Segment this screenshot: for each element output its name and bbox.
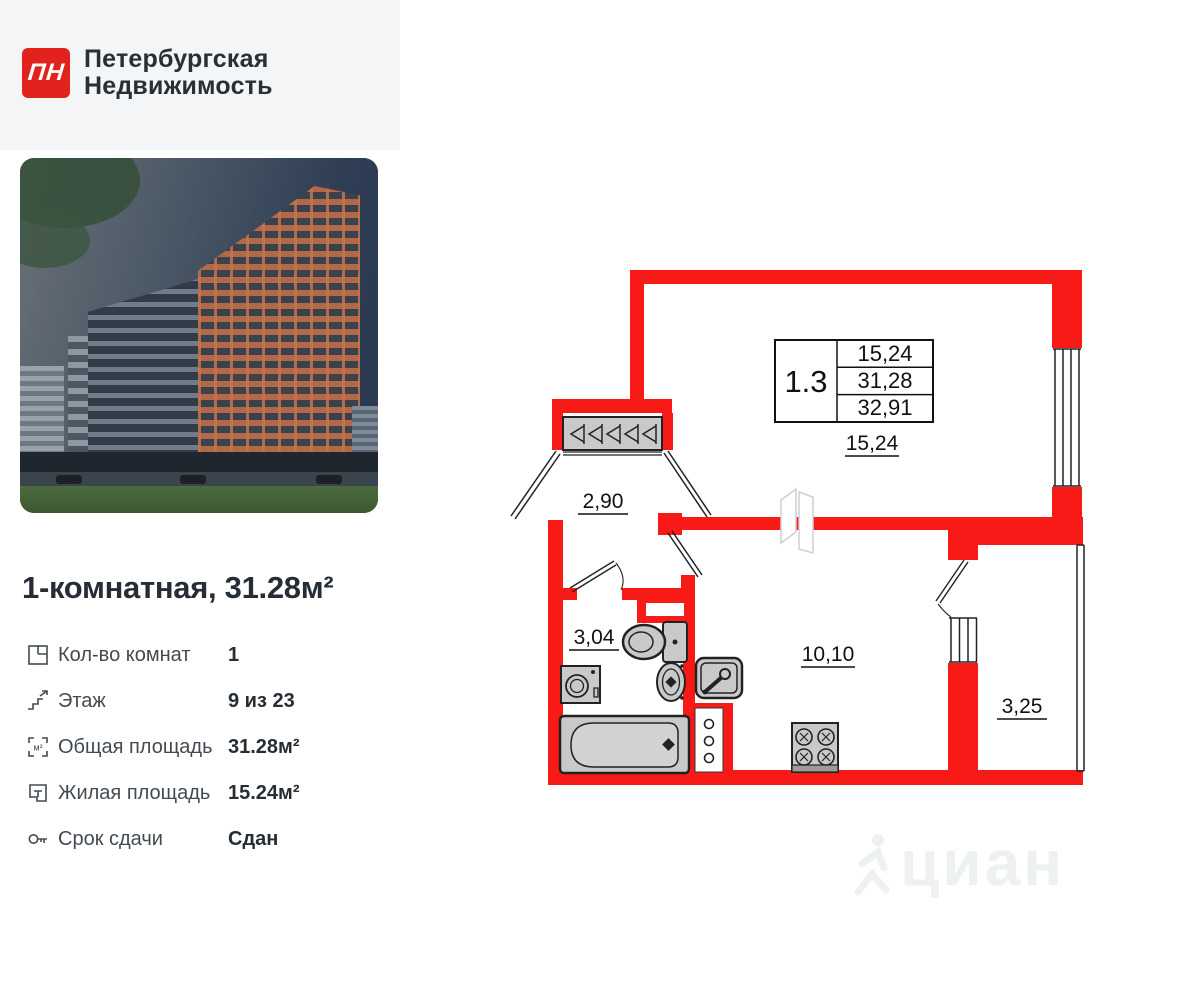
label-bathroom: 3,04 — [574, 626, 615, 649]
label-balcony: 3,25 — [1002, 695, 1043, 718]
cian-person-icon — [848, 830, 900, 910]
toilet-icon — [623, 622, 687, 662]
shaft — [695, 708, 723, 772]
unit-total-with-balcony: 32,91 — [857, 395, 912, 420]
kitchen-sink-icon — [696, 658, 742, 698]
niche — [646, 603, 684, 616]
window-balcony-door — [949, 618, 977, 662]
cian-watermark-text: циан — [900, 826, 1065, 900]
balcony-door-leaf — [936, 560, 968, 617]
wardrobe-icon — [563, 417, 662, 455]
label-living-room: 15,24 — [846, 432, 899, 455]
unit-living-area: 15,24 — [857, 341, 912, 366]
bathroom-door — [570, 561, 623, 592]
label-kitchen: 10,10 — [802, 643, 855, 666]
unit-table: 1.3 15,24 31,28 32,91 — [775, 340, 933, 422]
label-hallway: 2,90 — [583, 490, 624, 513]
bathtub-icon — [560, 716, 689, 773]
balcony-outer-wall — [1077, 545, 1084, 771]
stove-icon — [792, 723, 838, 772]
hand-sink-icon — [657, 663, 685, 701]
window-main-room — [1053, 349, 1081, 486]
washing-machine-icon — [561, 666, 600, 703]
cian-watermark: циан — [848, 820, 1108, 910]
unit-total-area: 31,28 — [857, 368, 912, 393]
unit-number: 1.3 — [784, 364, 827, 399]
